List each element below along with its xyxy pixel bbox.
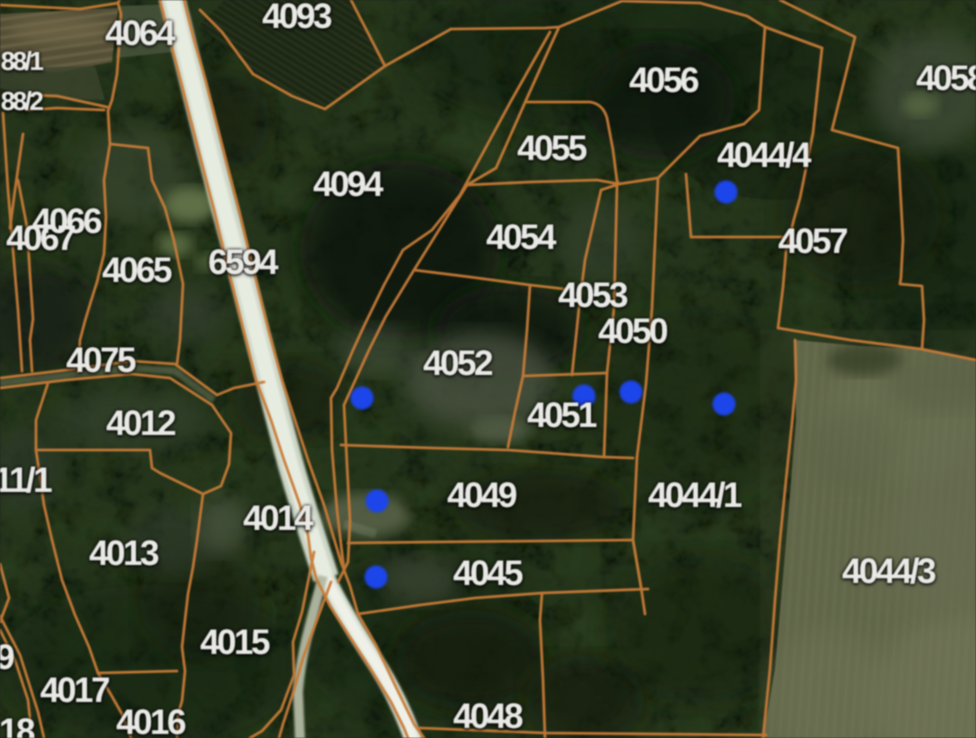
svg-text:4058: 4058 (916, 59, 976, 98)
svg-text:18: 18 (0, 712, 35, 738)
svg-text:4012: 4012 (106, 404, 176, 443)
svg-text:4045: 4045 (453, 554, 523, 593)
svg-text:4055: 4055 (517, 129, 587, 168)
svg-text:4057: 4057 (778, 222, 847, 261)
svg-text:4054: 4054 (486, 218, 557, 257)
svg-text:4044/1: 4044/1 (648, 476, 742, 515)
svg-text:4075: 4075 (66, 341, 136, 380)
svg-text:4044/4: 4044/4 (717, 136, 812, 175)
svg-text:4064: 4064 (105, 14, 176, 53)
svg-text:4093: 4093 (262, 0, 332, 36)
svg-text:4048: 4048 (453, 697, 523, 736)
svg-text:4017: 4017 (40, 671, 109, 710)
svg-text:88/1: 88/1 (1, 46, 44, 76)
svg-text:4094: 4094 (313, 165, 384, 204)
svg-text:4016: 4016 (116, 703, 186, 738)
svg-text:4052: 4052 (423, 344, 493, 383)
svg-text:9: 9 (0, 638, 15, 677)
svg-text:4014: 4014 (243, 499, 314, 538)
svg-text:4049: 4049 (447, 476, 517, 515)
svg-text:4013: 4013 (89, 534, 159, 573)
svg-text:4053: 4053 (558, 276, 628, 315)
svg-text:4056: 4056 (629, 61, 699, 100)
svg-text:4050: 4050 (598, 312, 668, 351)
svg-text:4044/3: 4044/3 (842, 552, 936, 591)
svg-text:4065: 4065 (102, 251, 172, 290)
svg-text:6594: 6594 (208, 243, 279, 282)
svg-text:11/1: 11/1 (0, 461, 52, 500)
svg-text:88/2: 88/2 (1, 86, 44, 116)
svg-text:4067: 4067 (6, 219, 75, 258)
svg-text:4015: 4015 (200, 623, 270, 662)
svg-text:4051: 4051 (527, 396, 597, 435)
